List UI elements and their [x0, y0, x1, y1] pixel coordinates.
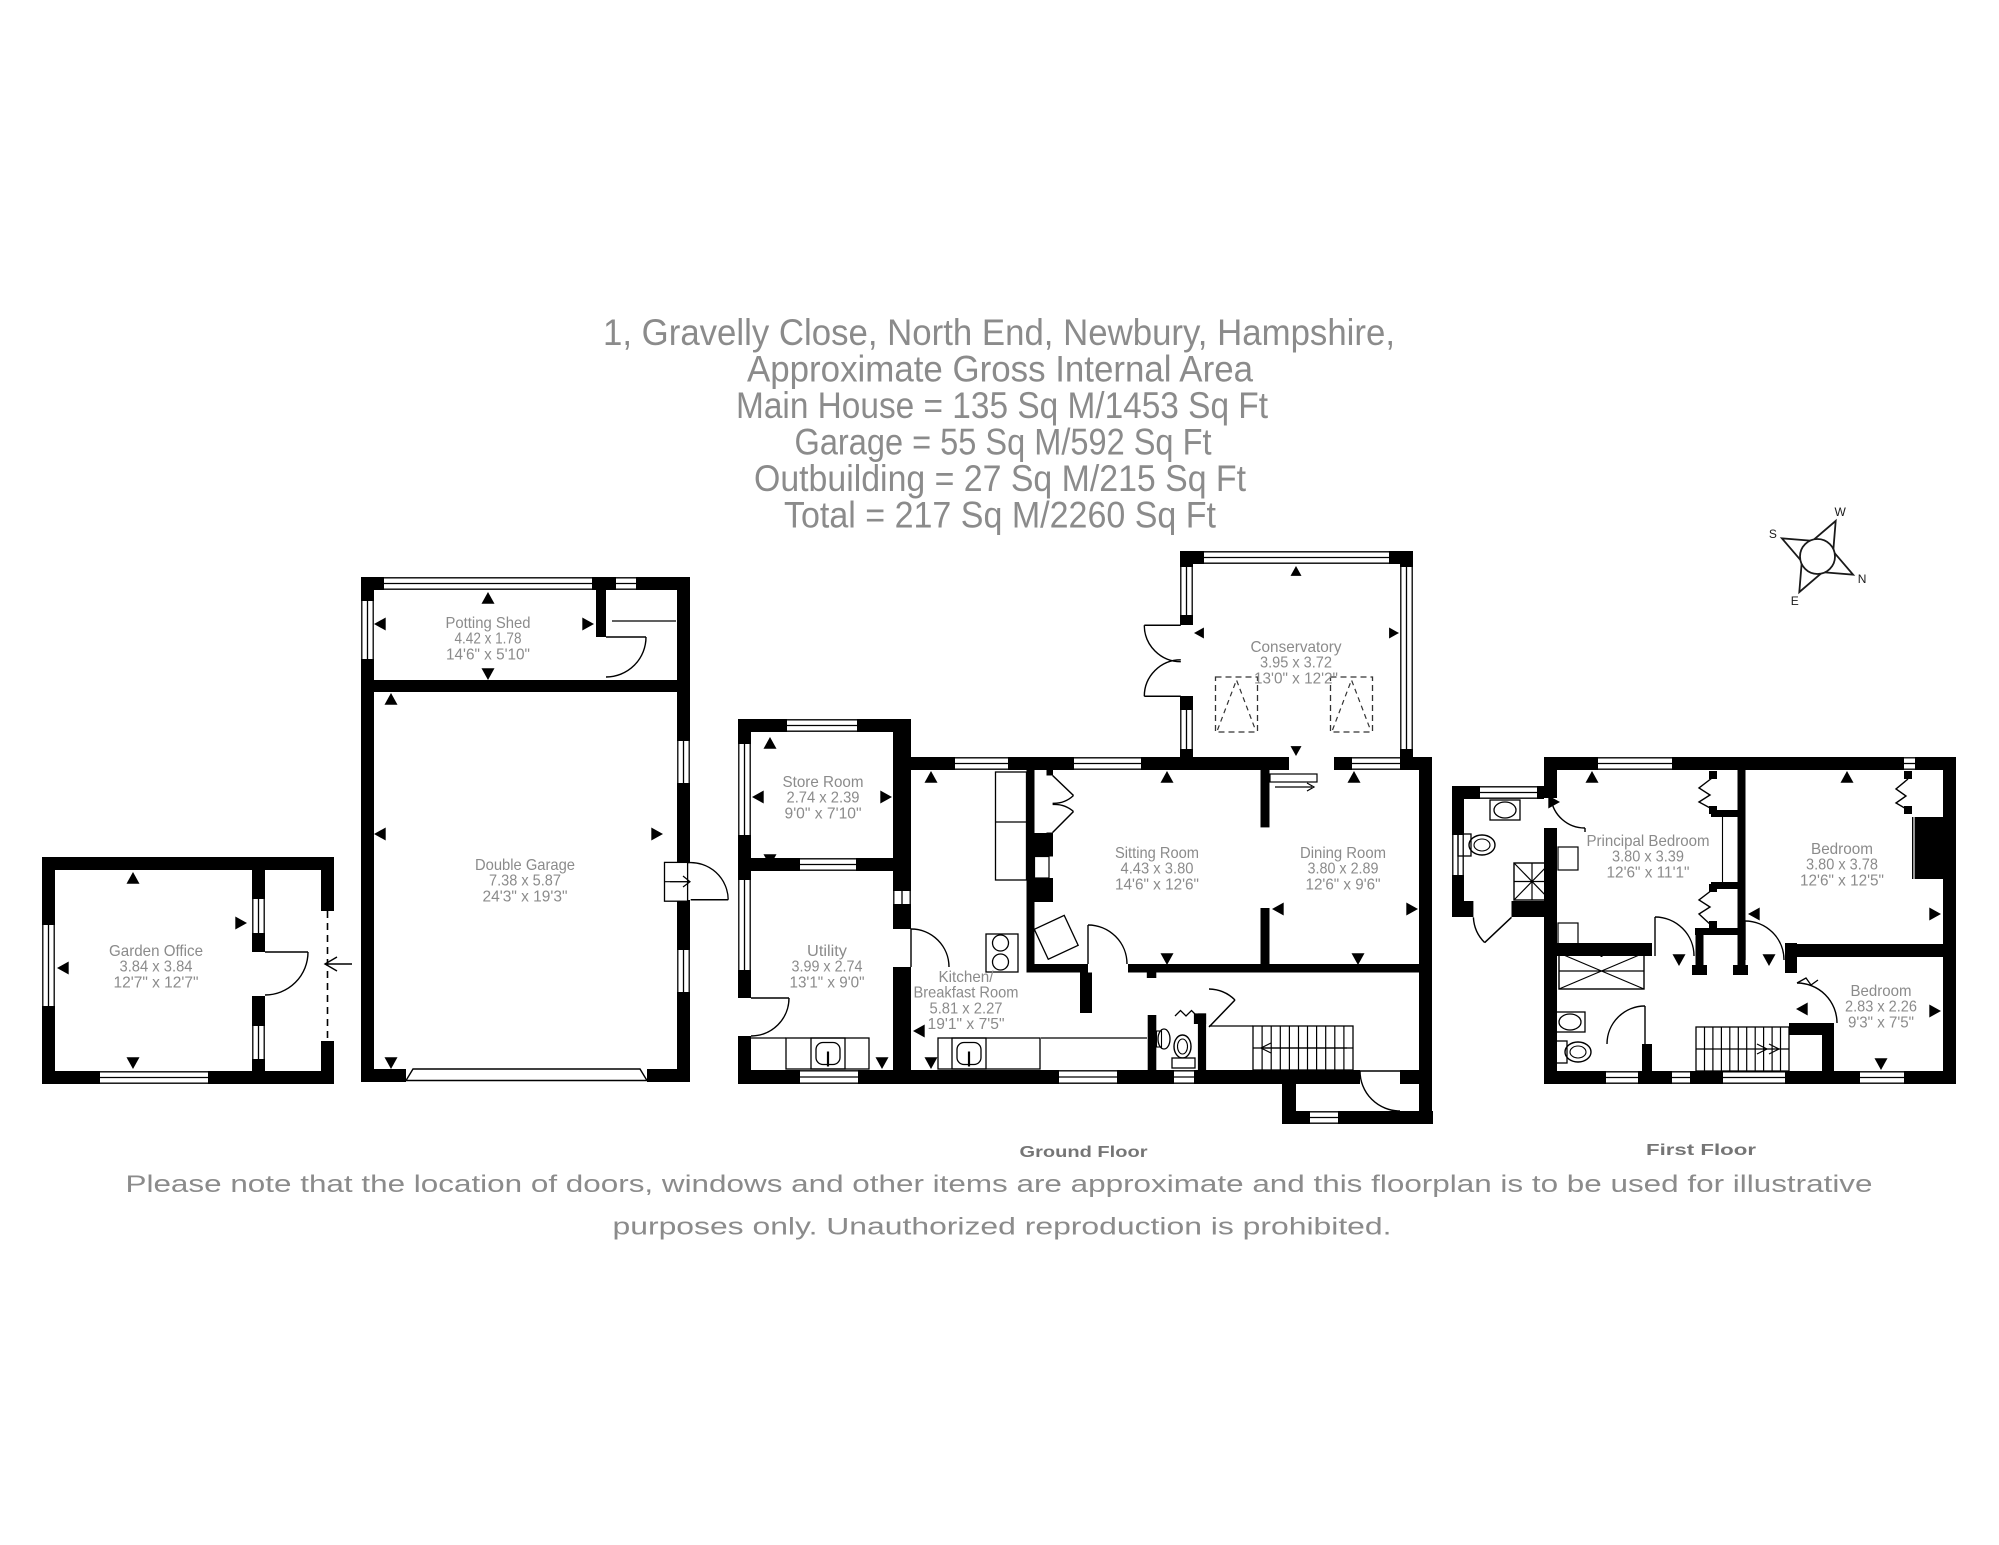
svg-text:N: N: [1858, 572, 1867, 586]
svg-text:5.81 x 2.27: 5.81 x 2.27: [930, 1000, 1003, 1017]
svg-text:3.80 x 3.39: 3.80 x 3.39: [1612, 849, 1684, 866]
svg-text:14'6" x 12'6": 14'6" x 12'6": [1115, 876, 1199, 893]
svg-text:12'6" x 11'1": 12'6" x 11'1": [1607, 864, 1690, 881]
svg-text:3.84 x 3.84: 3.84 x 3.84: [120, 959, 193, 976]
svg-text:Sitting Room: Sitting Room: [1115, 845, 1199, 862]
svg-text:9'0" x 7'10": 9'0" x 7'10": [785, 805, 862, 822]
svg-text:Total = 217 Sq M/2260 Sq Ft: Total = 217 Sq M/2260 Sq Ft: [784, 495, 1217, 536]
svg-text:1, Gravelly Close, North End,: 1, Gravelly Close, North End, Newbury, H…: [603, 312, 1395, 353]
svg-text:Main House = 135 Sq M/1453 Sq: Main House = 135 Sq M/1453 Sq Ft: [736, 385, 1269, 426]
svg-text:7.38 x 5.87: 7.38 x 5.87: [489, 873, 561, 890]
svg-text:12'6" x 9'6": 12'6" x 9'6": [1306, 876, 1381, 893]
svg-text:Principal Bedroom: Principal Bedroom: [1587, 833, 1710, 850]
svg-text:Garden Office: Garden Office: [109, 943, 203, 960]
svg-text:3.95 x 3.72: 3.95 x 3.72: [1260, 655, 1332, 672]
svg-text:24'3" x 19'3": 24'3" x 19'3": [483, 888, 568, 905]
svg-text:Potting Shed: Potting Shed: [446, 615, 531, 632]
svg-text:3.80 x 3.78: 3.80 x 3.78: [1806, 857, 1878, 874]
svg-text:Approximate Gross Internal Are: Approximate Gross Internal Area: [747, 349, 1253, 390]
svg-text:Store Room: Store Room: [783, 774, 864, 791]
svg-text:13'0" x 12'2": 13'0" x 12'2": [1254, 670, 1338, 687]
svg-text:Outbuilding = 27 Sq M/215 Sq F: Outbuilding = 27 Sq M/215 Sq Ft: [754, 458, 1247, 499]
svg-text:4.43 x 3.80: 4.43 x 3.80: [1121, 861, 1194, 878]
svg-text:4.42 x 1.78: 4.42 x 1.78: [455, 631, 522, 648]
svg-text:Kitchen/: Kitchen/: [939, 969, 995, 986]
svg-text:Utility: Utility: [807, 943, 847, 960]
svg-text:13'1" x 9'0": 13'1" x 9'0": [790, 974, 865, 991]
svg-text:14'6" x 5'10": 14'6" x 5'10": [446, 646, 530, 663]
svg-text:12'7" x 12'7": 12'7" x 12'7": [114, 974, 199, 991]
svg-text:Bedroom: Bedroom: [1851, 983, 1912, 1000]
svg-text:Conservatory: Conservatory: [1251, 639, 1342, 656]
svg-text:Double Garage: Double Garage: [475, 857, 575, 874]
svg-text:12'6" x 12'5": 12'6" x 12'5": [1800, 872, 1884, 889]
svg-text:3.99 x 2.74: 3.99 x 2.74: [792, 959, 863, 976]
svg-text:Please note that the location: Please note that the location of doors, …: [126, 1171, 1873, 1198]
svg-text:3.80 x 2.89: 3.80 x 2.89: [1308, 861, 1379, 878]
svg-text:19'1" x 7'5": 19'1" x 7'5": [928, 1016, 1005, 1033]
svg-text:First Floor: First Floor: [1646, 1142, 1756, 1159]
svg-text:Garage = 55 Sq M/592 Sq Ft: Garage = 55 Sq M/592 Sq Ft: [795, 422, 1213, 463]
svg-text:S: S: [1769, 527, 1777, 541]
svg-text:9'3" x 7'5": 9'3" x 7'5": [1848, 1014, 1914, 1031]
svg-text:E: E: [1791, 594, 1799, 608]
svg-text:Bedroom: Bedroom: [1811, 841, 1873, 858]
svg-text:Breakfast Room: Breakfast Room: [914, 985, 1019, 1002]
svg-text:Ground Floor: Ground Floor: [1020, 1144, 1148, 1161]
svg-text:2.74 x 2.39: 2.74 x 2.39: [787, 790, 860, 807]
svg-text:Dining Room: Dining Room: [1300, 845, 1386, 862]
svg-text:W: W: [1835, 505, 1847, 519]
svg-text:2.83 x 2.26: 2.83 x 2.26: [1845, 999, 1917, 1016]
svg-text:purposes only. Unauthorized re: purposes only. Unauthorized reproduction…: [613, 1214, 1392, 1241]
